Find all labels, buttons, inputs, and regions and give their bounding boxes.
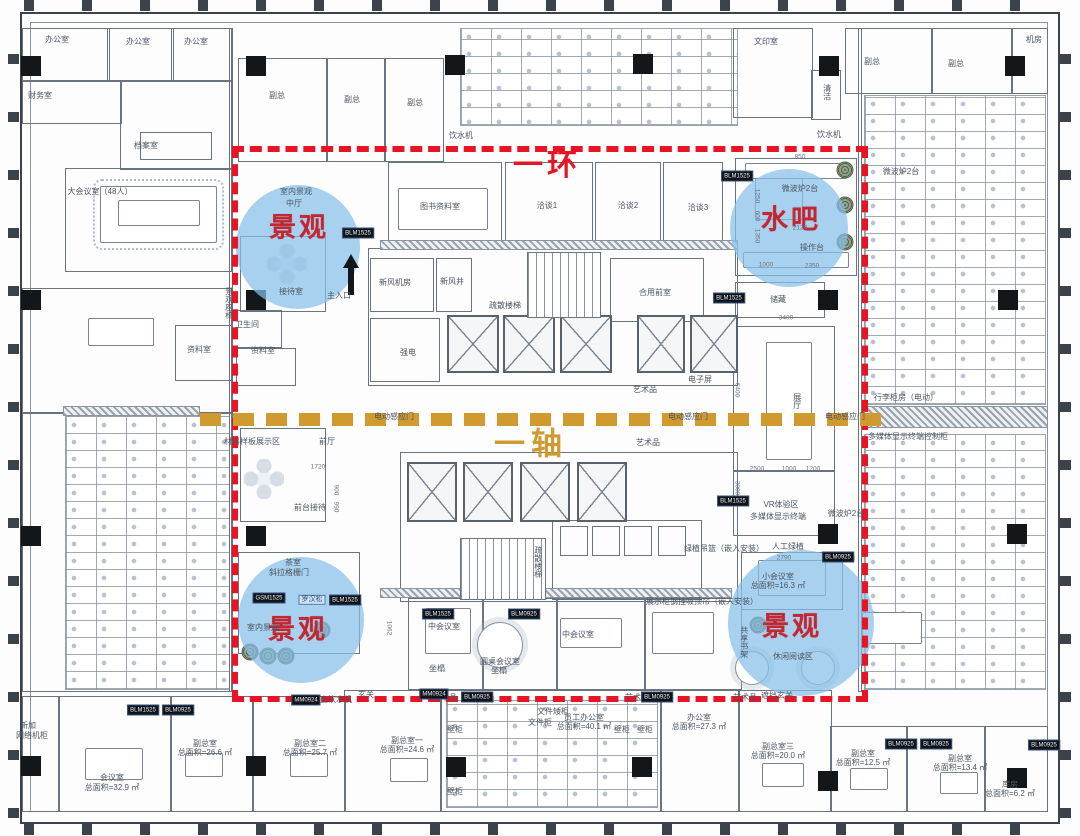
door-code-tag: BLM1525 <box>717 496 749 507</box>
hatched-wall <box>63 406 200 416</box>
dimension-label: 1000 <box>759 262 773 269</box>
room-label: 新风机房 <box>379 278 411 288</box>
meeting-table <box>118 200 200 226</box>
structural-column <box>632 757 652 777</box>
room-label: 总面积=32.9 ㎡ <box>85 783 139 793</box>
floor-plan-canvas: 景观水吧景观景观 办公室办公室办公室财务室档案室大会议室（48人）副总副总副总饮… <box>0 0 1080 836</box>
meeting-table <box>762 763 804 787</box>
room-label: 总面积=13.4 ㎡ <box>933 763 987 773</box>
room-label: 坐榻 <box>429 664 445 674</box>
room-label: 洽谈1 <box>537 201 557 211</box>
room-label: 壁柜 <box>614 725 630 735</box>
dimension-label: 2350 <box>805 263 819 270</box>
dimension-label: 2120 <box>793 225 807 232</box>
dimension-label: 3400 <box>779 315 793 322</box>
room-label: 资料室 <box>187 345 211 355</box>
room-label: 副总 <box>407 98 423 108</box>
room-label: 饮水机 <box>817 130 841 140</box>
room-wall <box>22 412 232 692</box>
room-label: 罗汉松 <box>299 595 326 605</box>
room-label: 微波炉2台 <box>828 509 864 519</box>
room-label: 景观座椅 <box>224 287 234 319</box>
room-label: 微波炉2台 <box>883 167 919 177</box>
room-label: 艺术品 <box>733 693 757 703</box>
room-label: 电子屏 <box>688 375 712 385</box>
room-label: 网络机柜 <box>16 731 48 741</box>
structural-column <box>21 56 41 76</box>
structural-column <box>1005 56 1025 76</box>
room-label: 办公室 <box>184 37 208 47</box>
door-code-tag: BLM0925 <box>1028 740 1060 751</box>
room-label: 艺术品 <box>633 385 657 395</box>
structural-column <box>446 757 466 777</box>
room-label: 接待室 <box>279 287 303 297</box>
door-code-tag: GSM1525 <box>252 593 285 604</box>
room-label: 总面积=40.1 ㎡ <box>557 722 611 732</box>
room-label: 多媒体显示终端控制柜 <box>868 432 948 442</box>
room-wall <box>22 696 60 812</box>
room-label: 壁柜 <box>447 787 463 797</box>
structural-column <box>818 771 838 791</box>
room-label: 办公室 <box>126 37 150 47</box>
room-label: 强电 <box>400 348 416 358</box>
room-label: 遮挡玄关 <box>761 691 793 701</box>
room-label: 副总 <box>864 57 880 67</box>
dimension-label: 1000 <box>782 466 796 473</box>
door-code-tag: BLM0925 <box>920 739 952 750</box>
room-label: 总面积=27.3 ㎡ <box>672 722 726 732</box>
room-label: 卫生间 <box>235 320 259 330</box>
room-label: 前厅 <box>319 437 335 447</box>
room-label: 电动感应门 <box>668 412 708 422</box>
door-code-tag: BLM0925 <box>162 705 194 716</box>
outer-column-ticks-top <box>24 0 1054 11</box>
room-label: 档案室 <box>134 141 158 151</box>
structural-column <box>633 54 653 74</box>
room-label: 洽谈2 <box>618 201 638 211</box>
room-label: 总面积=6.2 ㎡ <box>985 789 1035 799</box>
room-label: 储藏 <box>770 295 786 305</box>
door-code-tag: BLM0925 <box>641 692 673 703</box>
room-label: 行李柜房（电动） <box>874 393 938 403</box>
room-label: 文件柜 <box>528 718 552 728</box>
arrow-head <box>343 254 359 268</box>
structural-column <box>21 526 41 546</box>
room-wall <box>931 28 1013 94</box>
meeting-table <box>390 758 428 782</box>
room-label: 微波炉2台 <box>782 184 818 194</box>
room-label: 展示柜钢挂吸顶帘（嵌入安装） <box>646 597 758 607</box>
room-label: 电动感应门 <box>825 412 865 422</box>
room-label: 壁柜 <box>637 725 653 735</box>
door-code-tag: MM0924 <box>291 695 320 706</box>
room-label: 室内景观 <box>247 623 279 633</box>
axis-annotation-label: 一轴 <box>494 419 568 464</box>
room-label: 清洁 <box>822 84 832 100</box>
open-office-desk-zone <box>460 28 738 126</box>
room-label: 办公室 <box>45 35 69 45</box>
outer-column-ticks-right <box>1060 16 1071 818</box>
room-label: 副总 <box>344 95 360 105</box>
room-label: 前台接待 <box>294 503 326 513</box>
room-label: 大会议室（48人） <box>68 187 133 197</box>
room-label: 壁柜 <box>447 725 463 735</box>
dimension-label: 1350 <box>754 229 761 243</box>
room-label: 副总 <box>948 59 964 69</box>
door-code-tag: BLM0925 <box>822 552 854 563</box>
door-code-tag: BLM1525 <box>422 609 454 620</box>
room-label: 图书资料室 <box>420 202 460 212</box>
room-label: 操作台 <box>800 243 824 253</box>
room-label: 疏散楼梯 <box>533 546 543 578</box>
ring-annotation-label: 一环 <box>513 140 581 184</box>
room-label: 共享书架 <box>739 626 749 658</box>
structural-column <box>246 56 266 76</box>
room-label: 总面积=12.5 ㎡ <box>836 758 890 768</box>
dimension-label: 850 <box>795 154 806 161</box>
room-label: 茶室 <box>285 558 301 568</box>
room-label: 中厅 <box>286 199 302 209</box>
dimension-label: 990 <box>333 502 340 513</box>
room-label: 玄关 <box>358 690 374 700</box>
structural-column <box>445 55 465 75</box>
room-label: 人工绿植 <box>772 542 804 552</box>
room-label: 总面积=20.0 ㎡ <box>751 751 805 761</box>
room-label: 主入口 <box>327 291 351 301</box>
room-wall <box>22 80 122 124</box>
room-label: 总面积=25.7 ㎡ <box>283 748 337 758</box>
outer-column-ticks-bottom <box>24 824 1054 835</box>
door-code-tag: BLM1525 <box>721 171 753 182</box>
open-office-desk-zone <box>864 434 1046 690</box>
room-label: 洽谈3 <box>688 203 708 213</box>
room-label: 总面积=24.6 ㎡ <box>380 745 434 755</box>
room-label: 合用前室 <box>639 288 671 298</box>
room-wall <box>107 28 110 82</box>
room-label: 坐榻 <box>491 666 507 676</box>
dimension-label: 1200 <box>806 466 820 473</box>
door-code-tag: MM0924 <box>419 689 448 700</box>
structural-column <box>21 756 41 776</box>
room-label: 绿植吊篮（嵌入安装） <box>684 544 764 554</box>
room-label: 中会议室 <box>428 622 460 632</box>
dimension-label: 2790 <box>777 555 791 562</box>
room-label: 财务室 <box>28 91 52 101</box>
room-label: 中会议室 <box>562 630 594 640</box>
meeting-table <box>88 318 154 346</box>
dimension-label: 1720 <box>311 464 325 471</box>
room-label: 机房 <box>1026 35 1042 45</box>
room-label: 总面积=16.3 ㎡ <box>751 581 805 591</box>
room-label: 会议室 <box>100 773 124 783</box>
structural-column <box>1007 524 1027 544</box>
room-label: 文印室 <box>754 37 778 47</box>
meeting-table <box>850 768 888 790</box>
dimension-label: 2500 <box>750 466 764 473</box>
room-label: 新加 <box>20 721 36 731</box>
room-label: 新风井 <box>440 277 464 287</box>
room-wall <box>660 690 740 812</box>
room-label: 总面积=26.6 ㎡ <box>178 748 232 758</box>
structural-column <box>819 56 839 76</box>
dimension-label: 1062 <box>386 621 393 635</box>
door-code-tag: BLM0925 <box>461 692 493 703</box>
dimension-label: 6400 <box>734 383 741 397</box>
dimension-label: 3000 <box>734 481 741 495</box>
dimension-label: 900 <box>333 485 340 496</box>
room-label: 材料样板展示区 <box>224 437 280 447</box>
structural-column <box>246 756 266 776</box>
door-code-tag: BLM1525 <box>127 705 159 716</box>
dimension-label: 1250 <box>754 189 761 203</box>
room-label: 室内景观 <box>280 187 312 197</box>
open-office-desk-zone <box>864 95 1046 405</box>
structural-column <box>998 290 1018 310</box>
outer-column-ticks-left <box>8 16 19 818</box>
room-label: 休闲阅读区 <box>773 652 813 662</box>
door-code-tag: BLM1525 <box>329 595 361 606</box>
room-label: 展厅 <box>792 393 802 409</box>
meeting-table <box>940 772 978 794</box>
door-code-tag: BLM0925 <box>885 739 917 750</box>
room-label: 副总 <box>269 91 285 101</box>
room-label: 电动感应门 <box>374 412 414 422</box>
room-label: VR体验区 <box>763 500 798 510</box>
room-label: 饮水机 <box>449 131 473 141</box>
door-code-tag: BLM1525 <box>713 293 745 304</box>
dimension-label: 600 <box>754 211 761 222</box>
room-label: 疏散楼梯 <box>489 301 521 311</box>
door-code-tag: BLM1525 <box>342 228 374 239</box>
room-label: 多媒体显示终端 <box>750 512 806 522</box>
room-label: 直饮水机 <box>320 695 352 705</box>
room-label: 艺术品 <box>636 438 660 448</box>
room-label: 斜拉格栅门 <box>269 568 309 578</box>
room-label: 资料室 <box>251 346 275 356</box>
room-wall <box>171 28 174 82</box>
structural-column <box>21 290 41 310</box>
door-code-tag: BLM0925 <box>508 609 540 620</box>
